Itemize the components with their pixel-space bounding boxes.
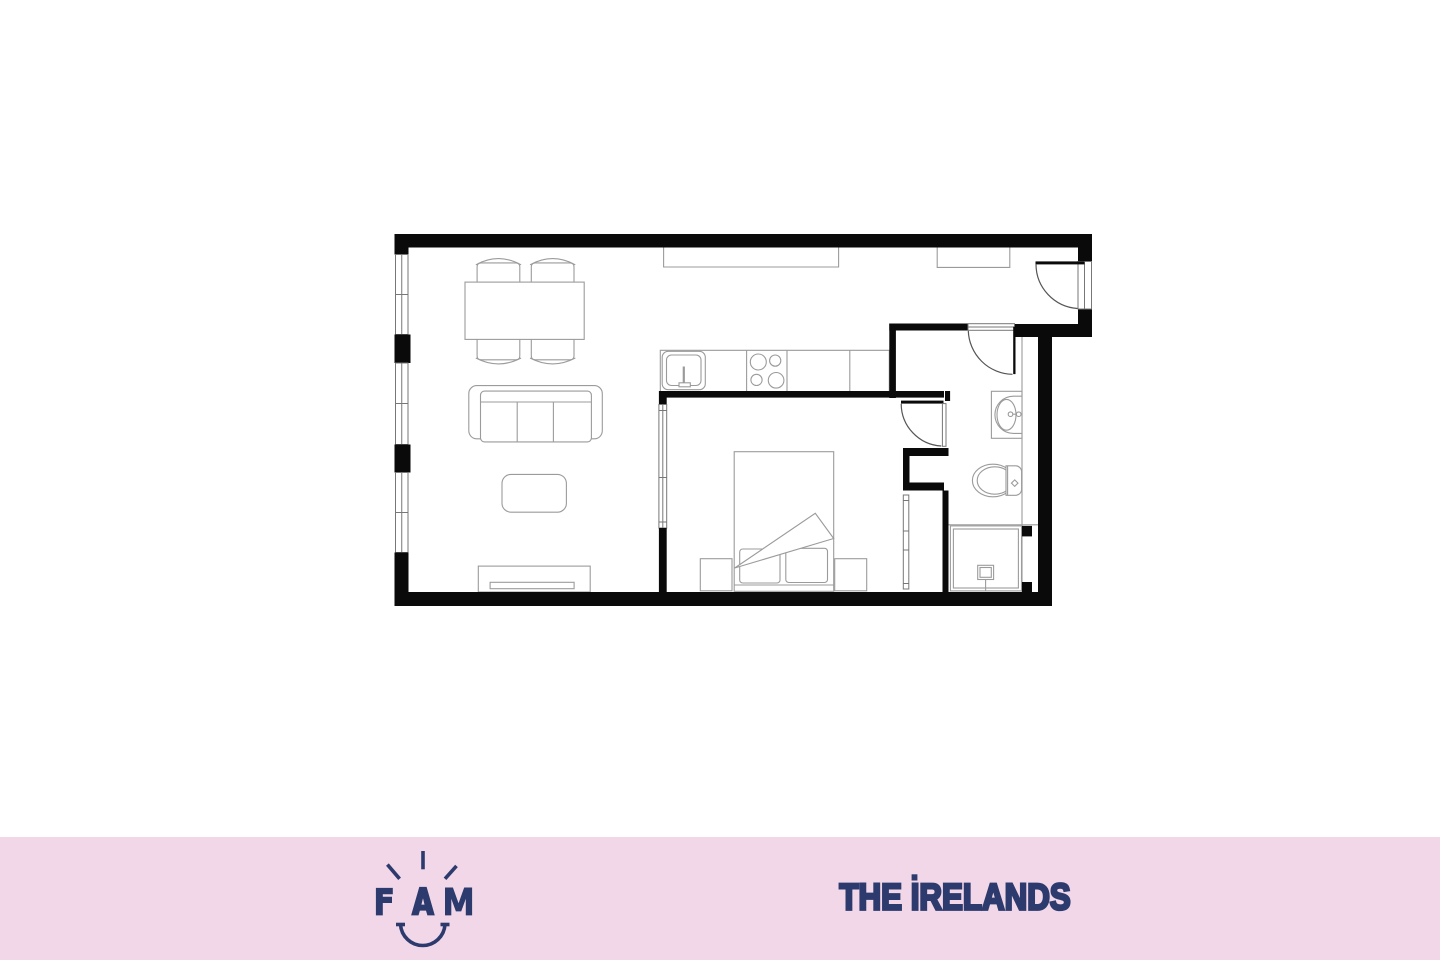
svg-text:THE IRELANDS: THE IRELANDS xyxy=(839,877,1070,918)
